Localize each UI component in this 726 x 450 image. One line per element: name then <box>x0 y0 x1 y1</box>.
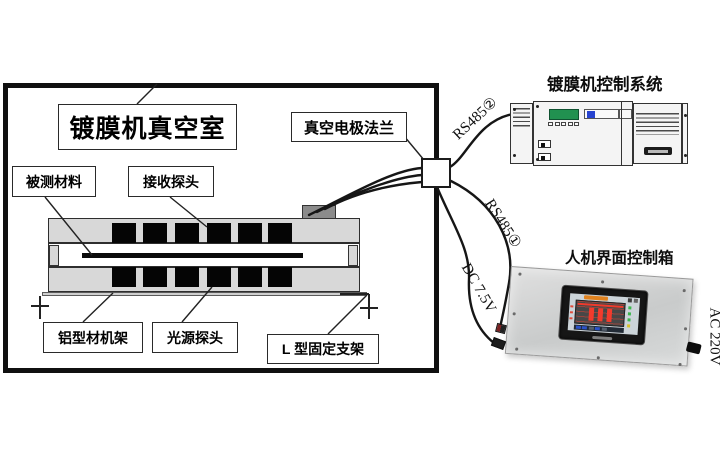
vacuum-electrode-flange <box>421 158 451 188</box>
plc-port-pin <box>541 156 545 160</box>
plc-slot-divider <box>618 110 620 118</box>
panel-screw <box>513 312 516 315</box>
screen-button <box>589 326 594 329</box>
rs485-1-connector-plug <box>495 323 507 334</box>
label-frame: 铝型材机架 <box>43 322 143 353</box>
panel-screw <box>518 273 521 276</box>
panel-screw <box>515 348 518 351</box>
plc-screw <box>684 114 687 117</box>
label-receiver-probe: 接收探头 <box>128 166 214 197</box>
chamber-title: 镀膜机真空室 <box>58 104 237 150</box>
diagram-canvas: 镀膜机真空室 真空电极法兰 被测材料 接收探头 铝型材机架 光源探头 L 型固定… <box>0 0 726 450</box>
plc-module-divider <box>621 102 622 165</box>
plc-display-green <box>549 109 579 120</box>
label-rs485-2: RS485② <box>445 90 505 148</box>
screen-icon-1 <box>628 298 632 302</box>
chart-left-tick <box>569 317 572 319</box>
plc-device <box>510 101 688 166</box>
panel-screw <box>601 280 604 283</box>
hmi-box-title: 人机界面控制箱 <box>565 246 674 268</box>
hmi-touchscreen-bezel <box>558 285 649 346</box>
chart-left-tick <box>570 305 573 307</box>
dc-power-connector-plug <box>491 337 506 350</box>
screen-led-yellow <box>627 324 630 327</box>
label-light-probe: 光源探头 <box>152 322 238 353</box>
screen-led-green <box>628 306 631 309</box>
plc-key <box>574 122 579 126</box>
chart-red-line <box>577 303 623 308</box>
screen-button <box>595 327 600 330</box>
chart-red-bar-1 <box>588 308 593 321</box>
plc-screw <box>536 105 539 108</box>
screen-bar-chart <box>574 300 626 327</box>
plc-screw <box>536 158 539 161</box>
screen-led-green <box>628 312 631 315</box>
panel-screw <box>684 327 687 330</box>
chart-red-bar-3 <box>606 309 611 322</box>
hmi-control-panel <box>505 266 694 367</box>
screen-button <box>582 326 587 329</box>
label-dc-power: DC 7.5V <box>456 259 500 318</box>
label-ac-power: AC 220V <box>706 307 723 367</box>
plc-brand-text-smudge <box>648 150 668 153</box>
screen-icon-2 <box>634 299 638 303</box>
hmi-screen <box>568 293 640 335</box>
plc-cpu-module <box>533 101 633 166</box>
chart-left-tick <box>570 311 573 313</box>
plc-status-slot <box>584 109 632 119</box>
plc-right-strip <box>682 103 688 164</box>
ac-power-plug <box>686 341 702 354</box>
screen-led-green <box>627 318 630 321</box>
plc-screw <box>513 108 516 111</box>
control-system-title: 镀膜机控制系统 <box>547 71 663 95</box>
label-material: 被测材料 <box>12 166 96 197</box>
plc-key <box>555 122 560 126</box>
plc-port-pin <box>541 143 545 147</box>
label-l-bracket: L 型固定支架 <box>267 334 379 364</box>
plc-key <box>561 122 566 126</box>
panel-screw <box>678 363 681 366</box>
plc-brand-label <box>644 147 672 155</box>
panel-screw <box>683 289 686 292</box>
plc-port-1 <box>538 140 551 148</box>
plc-port-2 <box>538 153 551 161</box>
plc-expansion-module <box>633 103 682 164</box>
screen-button <box>575 325 580 328</box>
plc-indicator-blue <box>587 111 595 118</box>
label-rs485-1: RS485① <box>478 191 528 255</box>
hmi-brand-logo <box>592 335 612 340</box>
plc-left-module <box>510 103 533 164</box>
plc-screw <box>513 154 516 157</box>
plc-vent-lines-right <box>636 113 679 135</box>
screen-button <box>602 327 607 330</box>
plc-vent-lines-left <box>513 108 530 128</box>
plc-screw <box>684 154 687 157</box>
plc-key <box>548 122 553 126</box>
chart-red-bar-2 <box>597 308 602 321</box>
label-flange: 真空电极法兰 <box>291 112 407 142</box>
plc-key-row <box>548 122 579 126</box>
plc-key <box>568 122 573 126</box>
panel-screw <box>597 356 600 359</box>
